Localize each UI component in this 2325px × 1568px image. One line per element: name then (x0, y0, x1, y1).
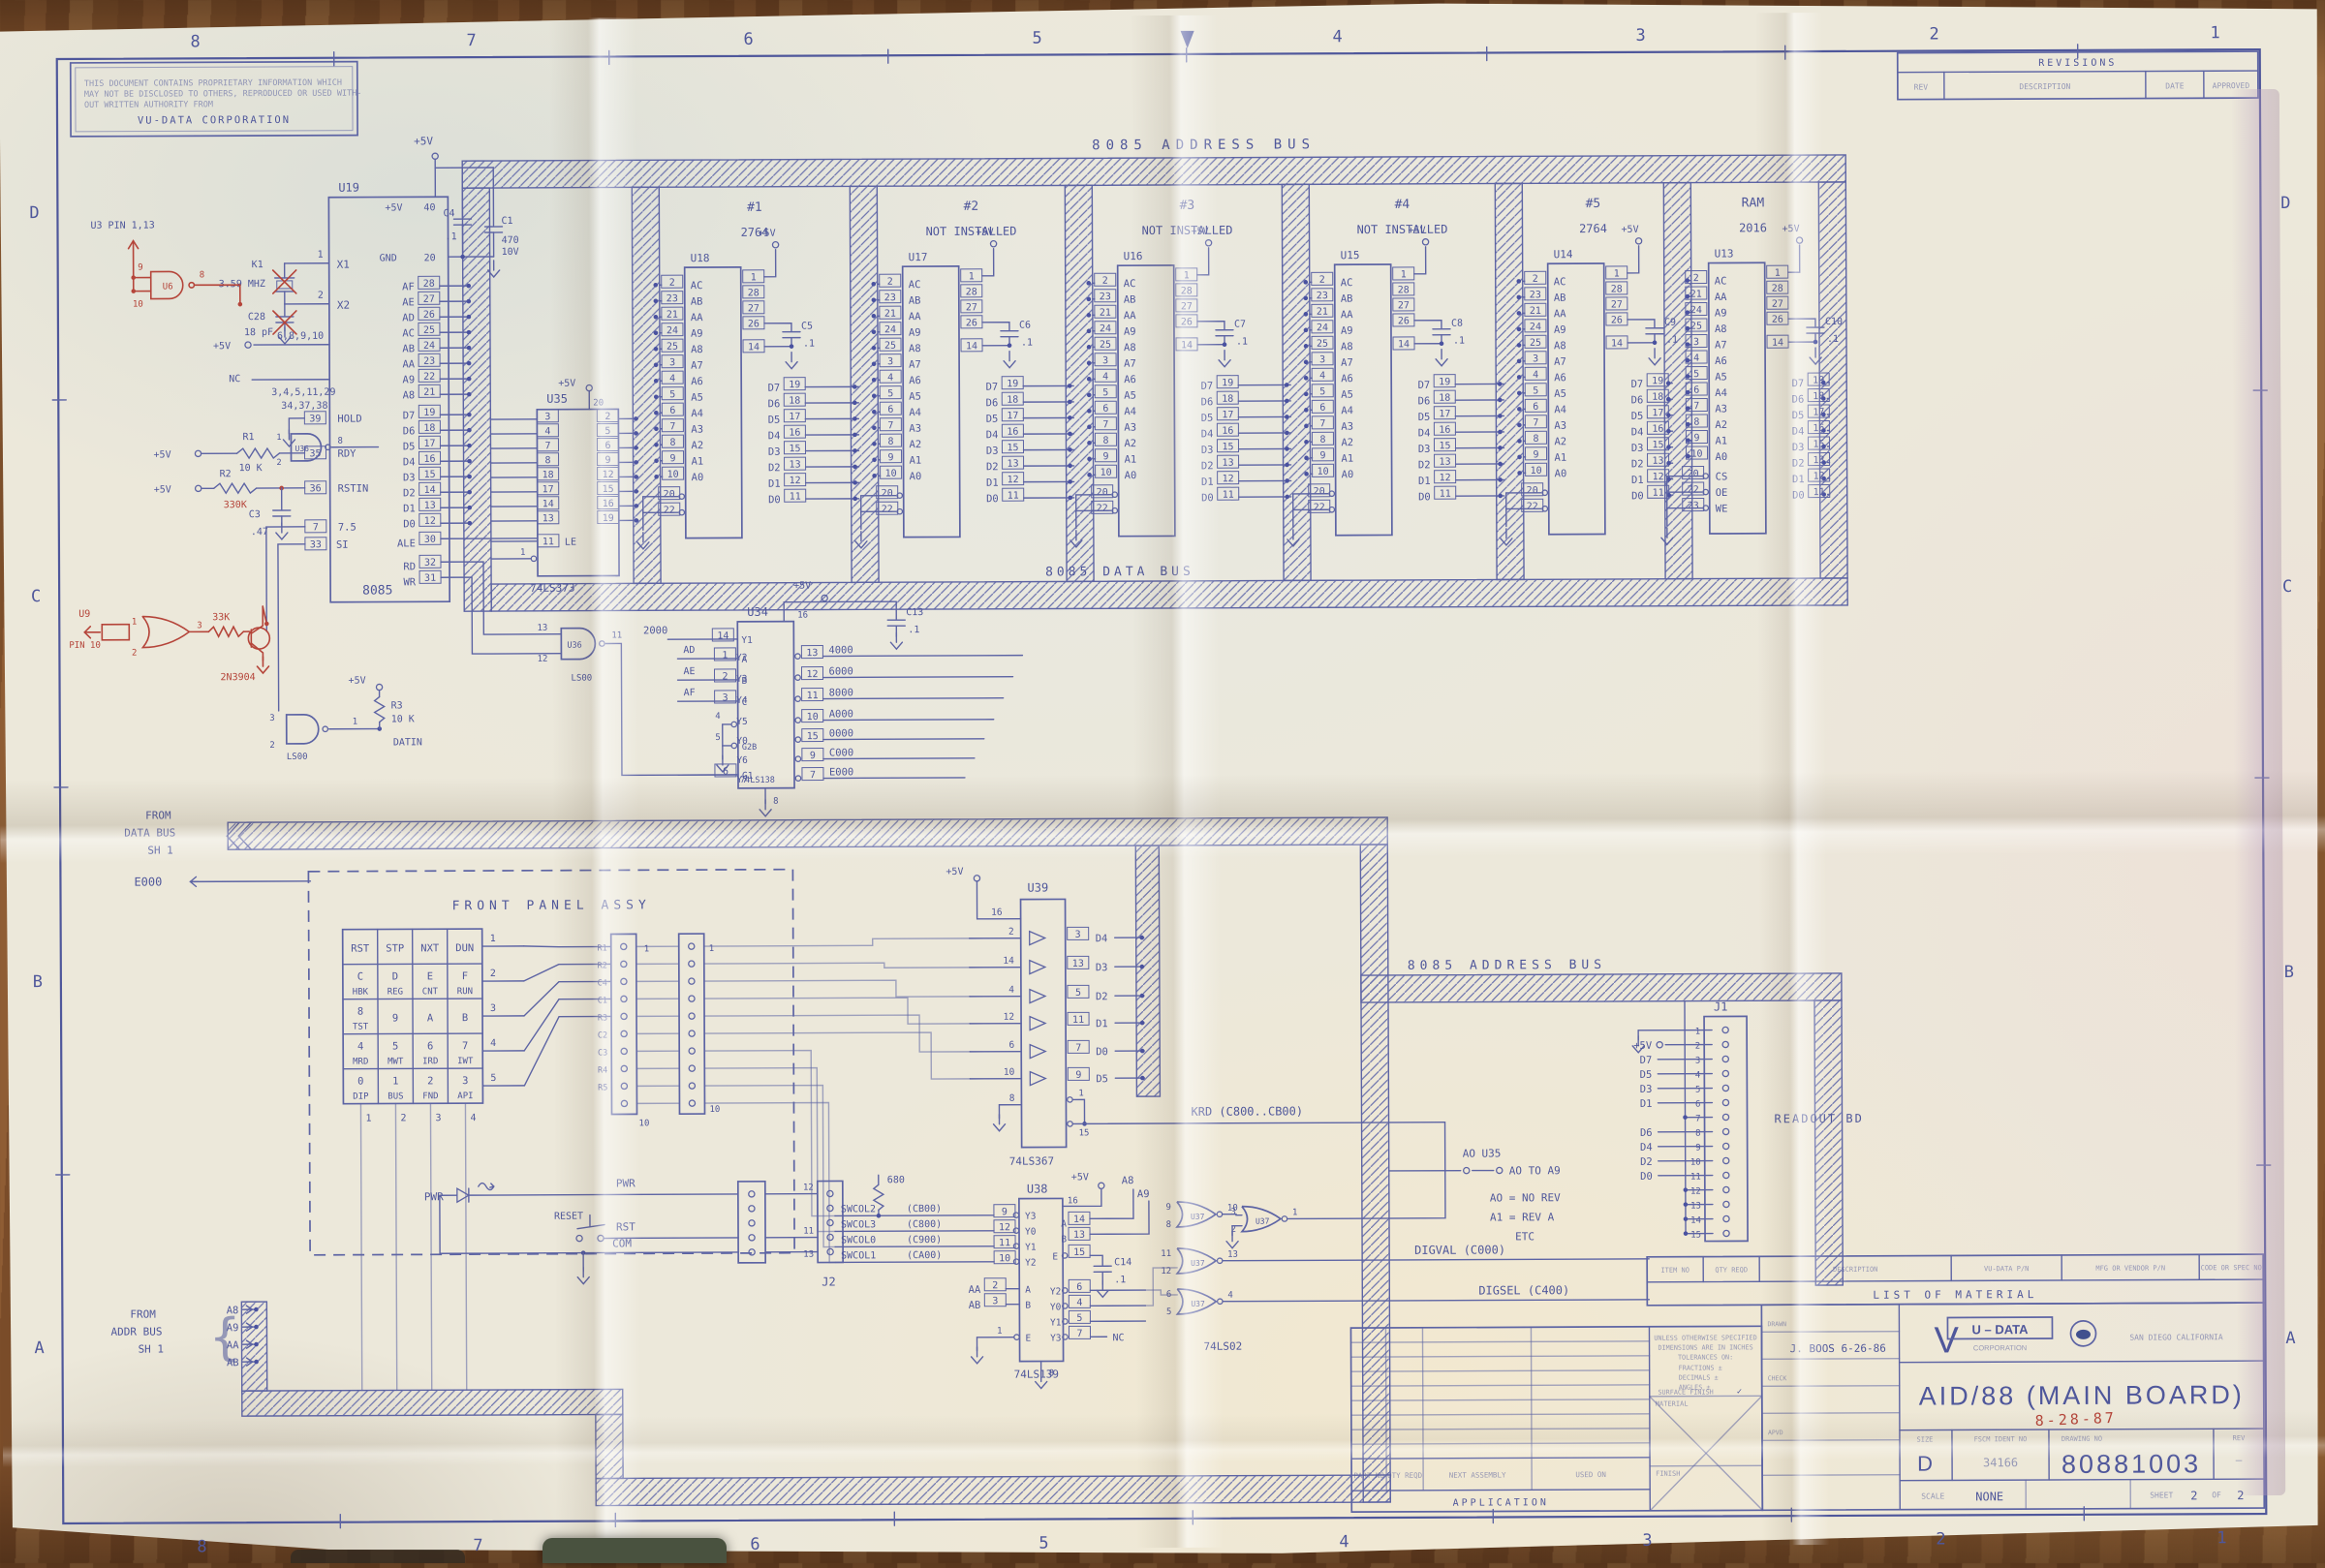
red-box (102, 625, 129, 640)
terminal (1796, 237, 1802, 243)
pin-number: 14 (748, 342, 759, 353)
label: 1 (365, 1114, 371, 1124)
conn-pin-label: C4 (598, 979, 607, 989)
label: AA (969, 1284, 981, 1296)
junction (1517, 455, 1522, 460)
terminal (621, 1083, 627, 1089)
zone-number: 7 (466, 31, 476, 50)
pin-number: 15 (807, 731, 819, 742)
label: 10 K (391, 714, 415, 724)
pin-number: 3 (1102, 355, 1108, 366)
label: PIN 10 (69, 641, 101, 651)
size-label: SIZE (1917, 1436, 1934, 1444)
inversion-bubble (1013, 1213, 1018, 1217)
terminal (1497, 1167, 1503, 1173)
inversion-bubble (1013, 1259, 1018, 1264)
terminal (1722, 1085, 1728, 1091)
pin-number: 6 (1008, 1040, 1014, 1051)
address-value: 6000 (828, 665, 852, 677)
junction (852, 384, 857, 389)
pin-name: D6 (1418, 395, 1431, 407)
memory-chip-U14: #52764U142AC23AB21AA24A925A83A74A65A56A4… (1499, 197, 1679, 545)
pin-number: 8 (669, 438, 675, 448)
pin-name: D4 (1631, 426, 1644, 438)
inversion-bubble (1218, 1299, 1223, 1304)
dwg-no-label: DRAWING NO (2061, 1435, 2102, 1443)
junction (467, 506, 472, 510)
junction (254, 1325, 259, 1330)
terminal (1722, 1027, 1728, 1032)
junction (634, 446, 638, 450)
pin-number: 3 (1693, 337, 1699, 348)
label: AB (227, 1357, 239, 1368)
pin-number: 21 (1530, 306, 1541, 317)
bus-bar (1814, 1000, 1843, 1285)
wire (278, 544, 306, 711)
terminal (432, 153, 438, 159)
key-label: RST (351, 943, 370, 955)
junction (1304, 456, 1309, 461)
label: +5V (153, 449, 170, 460)
label: +5V (154, 484, 171, 495)
wire (1627, 246, 1639, 273)
pin-name: D5 (1418, 412, 1431, 423)
pin-name: Y6 (736, 755, 748, 766)
pin-number: 23 (1530, 290, 1541, 300)
inversion-bubble (1013, 1244, 1018, 1248)
label: A8 (403, 389, 416, 401)
terminal (621, 1030, 627, 1036)
conn-pin-label: R2 (598, 962, 607, 971)
gate-part: LS00 (572, 674, 593, 684)
label: 15 (1079, 1128, 1090, 1138)
pin-number: 4 (669, 374, 675, 384)
junction (872, 297, 877, 302)
pin-number: 31 (424, 573, 436, 584)
terminal (689, 1030, 695, 1036)
a8-label: A8 (1122, 1175, 1134, 1186)
pin-name: D0 (986, 493, 999, 505)
vudata-logo-text: U – DATA (1971, 1322, 2029, 1337)
wire (704, 998, 970, 1025)
label: AB (402, 343, 415, 354)
wire (835, 1215, 994, 1216)
terminal (689, 978, 695, 984)
pin-number: 12 (1007, 475, 1019, 485)
terminal (1723, 1157, 1729, 1163)
zone-number: 2 (1929, 24, 1938, 44)
pin-number: 1 (969, 271, 975, 282)
pin-number: 12 (790, 476, 801, 486)
label: .1 (1114, 1275, 1126, 1285)
bus-bar (1065, 185, 1094, 581)
pin-number: 3 (669, 357, 675, 368)
label: 13 (803, 1250, 814, 1260)
label: 18 pF (244, 327, 273, 338)
label: D0 (403, 518, 416, 530)
zone-number: 8 (190, 32, 200, 51)
sheet-of: OF (2212, 1491, 2221, 1499)
terminal (621, 996, 627, 1001)
label: R1 (242, 432, 254, 443)
label: U37 (1191, 1300, 1205, 1308)
pin-number: 13 (790, 460, 801, 471)
pin-number: 10 (885, 469, 897, 479)
key-label: IWT (457, 1057, 474, 1066)
label: ALE (397, 538, 416, 549)
rev-jumper-note: AO U35AO TO A9AO = NO REVA1 = REV AETC (1389, 1147, 1562, 1244)
pin-name: AA (691, 312, 703, 323)
pin-number: 7 (1076, 1329, 1082, 1339)
pin-number: 26 (1611, 315, 1623, 325)
pin-name: A9 (909, 327, 921, 339)
pin-name: A9 (1341, 325, 1353, 337)
junction (1653, 340, 1658, 345)
junction (1285, 383, 1289, 387)
swcol-name: SWCOL0 (841, 1235, 876, 1245)
application-block: PART NO QTY REQD NEXT ASSEMBLY USED ON A… (1350, 1326, 1762, 1512)
finish-label: FINISH (1656, 1470, 1680, 1478)
junction (1285, 415, 1289, 419)
pin-number: 17 (542, 484, 554, 495)
label: 20 (424, 253, 436, 263)
key-label: CNT (422, 987, 439, 997)
swcol-addr: (CB00) (907, 1204, 942, 1214)
label: SH 1 (139, 1343, 165, 1356)
junction (1140, 994, 1145, 999)
pin-number: 15 (424, 470, 436, 480)
pin-name: A2 (1554, 436, 1566, 447)
label: .1 (446, 231, 457, 242)
pin-number: 23 (423, 356, 435, 367)
junction (1087, 345, 1092, 350)
pin-number: 10 (1690, 449, 1702, 460)
pin-number: 5 (1695, 1086, 1700, 1095)
label: AB (969, 1300, 981, 1311)
pin-number: 6 (669, 406, 675, 416)
pin-number: 5 (887, 388, 893, 399)
label: 11 (611, 630, 622, 640)
wire (835, 1262, 994, 1263)
junction (872, 346, 877, 351)
pin-number: 23 (1317, 291, 1328, 301)
pin-name: A3 (1554, 420, 1566, 432)
pin-number: 3 (887, 356, 893, 367)
pin-number: 8 (545, 455, 551, 466)
junction (1684, 1187, 1689, 1192)
junction (1087, 425, 1092, 430)
cap-value: .1 (803, 339, 815, 350)
wire (764, 250, 776, 277)
terminal (749, 1235, 755, 1241)
pin-name: D2 (1096, 991, 1108, 1002)
terminal (1422, 239, 1428, 245)
pin-number: 23 (1100, 292, 1111, 302)
pin-number: 13 (1073, 1230, 1085, 1241)
pin-name: A4 (1341, 405, 1353, 416)
junction (1087, 473, 1092, 477)
pin-number: 2 (1008, 927, 1014, 938)
wire (448, 929, 449, 1103)
label: AA (227, 1339, 239, 1351)
junction (467, 330, 472, 335)
pin-number: 5 (604, 426, 610, 437)
junction (1303, 280, 1308, 285)
label: 16 (991, 907, 1003, 918)
pin-number: 15 (1007, 443, 1018, 453)
junction (1007, 343, 1012, 348)
pin-number: 10 (667, 470, 679, 480)
pin-name: A8 (1341, 341, 1353, 353)
pin-name: A1 (1125, 454, 1137, 466)
pin-number: 21 (666, 310, 678, 321)
pin-number: 24 (1317, 323, 1328, 333)
pin-name: D0 (1631, 490, 1644, 502)
pin-number: 10 (1004, 1067, 1015, 1078)
pin-number: 1 (751, 272, 757, 283)
pin-name: D0 (1096, 1046, 1108, 1058)
terminal (1722, 1114, 1728, 1120)
pin-number: 15 (789, 444, 800, 454)
key-label: DUN (455, 942, 474, 954)
scale-value: NONE (1975, 1490, 2003, 1503)
terminal (1635, 238, 1641, 244)
junction (1686, 310, 1690, 315)
terminal (621, 978, 627, 984)
cap-value: .1 (1236, 337, 1248, 348)
bus-bar (1282, 184, 1311, 580)
junction (654, 330, 659, 335)
key-label: STP (386, 942, 404, 954)
junction (1087, 377, 1092, 382)
pin-number: 19 (789, 380, 800, 390)
junction (852, 465, 857, 470)
label: 8 (773, 797, 778, 807)
buffer-symbol (1030, 1072, 1045, 1086)
junction (466, 284, 471, 289)
terminal (1722, 1128, 1728, 1134)
pin-name: A1 (1342, 453, 1354, 465)
pin-number: 7 (887, 420, 893, 431)
label: 40 (423, 202, 435, 213)
pin-name: A9 (691, 328, 703, 340)
junction (254, 1360, 259, 1365)
label: C28 (248, 312, 265, 323)
junction (1517, 327, 1522, 332)
wire (1197, 322, 1224, 329)
junction (1517, 407, 1522, 412)
pin-number: 16 (1652, 424, 1663, 435)
zone-letter: B (33, 972, 43, 992)
pin-name: Y3 (736, 674, 748, 685)
pin-number: 24 (423, 341, 435, 352)
inversion-bubble (795, 654, 800, 659)
pin-number: 28 (1181, 286, 1193, 296)
pin-number: 16 (789, 428, 800, 439)
revisions-block: REVISIONS REV DESCRIPTION DATE APPROVED (1898, 51, 2258, 100)
pin-number: 18 (789, 396, 800, 407)
wire (605, 643, 738, 776)
terminal (1205, 240, 1211, 246)
lower-buses: FROMDATA BUSSH 1E0008085 ADDRESS BUS (124, 802, 1844, 1508)
pin-number: 7 (1533, 417, 1538, 428)
conn-pin-label: R5 (598, 1084, 607, 1093)
pin-number: 24 (1530, 322, 1541, 332)
pin-name: AB (1341, 293, 1353, 305)
pin-name: D3 (1792, 442, 1805, 453)
pin-number: 14 (1772, 338, 1783, 349)
chip-part: 2764 (1579, 222, 1607, 235)
bus-bar (632, 187, 661, 583)
pin-number: 21 (1100, 308, 1111, 319)
label: U37 (1191, 1213, 1205, 1221)
junction (467, 444, 472, 448)
fscm-value: 34166 (1983, 1456, 2018, 1469)
label: ETC (1515, 1230, 1534, 1243)
pin-number: 4 (1695, 1071, 1700, 1081)
junction (1068, 432, 1072, 437)
chip-ref: U38 (1027, 1183, 1048, 1196)
label: FROM (130, 1308, 156, 1321)
label: Y3 (1050, 1333, 1062, 1343)
pin-name: A3 (1341, 421, 1353, 433)
junction (1821, 428, 1826, 433)
label: 9 (138, 263, 142, 273)
pin-number: 6 (1695, 1100, 1700, 1110)
pin-number: 5 (1533, 385, 1538, 396)
label: A (1061, 1218, 1067, 1229)
label: 10V (502, 247, 519, 258)
key-label: D (392, 970, 398, 982)
pin-name: A0 (1342, 469, 1354, 480)
label: C3 (249, 509, 261, 520)
label: R3 (391, 700, 403, 711)
pin-number: 22 (1688, 485, 1699, 496)
pin-number: 12 (424, 516, 436, 527)
label: 3 (490, 1003, 496, 1014)
pin-name: Y2 (1025, 1258, 1037, 1269)
revisions-col-rev: REV (1914, 83, 1929, 92)
label: AF (684, 688, 696, 698)
pin-number: 20 (882, 488, 893, 499)
label: 10 (133, 300, 143, 310)
label: D3 (403, 472, 416, 483)
front-panel: FRONT PANEL ASSYRSTSTPNXTDUNCHBKDREGECNT… (308, 869, 843, 1390)
terminal (689, 996, 695, 1001)
plus5-label: +5V (759, 229, 776, 239)
junction (634, 475, 638, 479)
terminal (1464, 1168, 1470, 1174)
pin-number: 13 (1690, 1202, 1701, 1212)
wire (577, 1277, 589, 1284)
pin-number: 14 (717, 630, 728, 641)
bus-bar (1135, 845, 1160, 1096)
wire (823, 720, 994, 721)
cap-value: .1 (1666, 335, 1678, 346)
pin-number: 13 (806, 648, 818, 659)
junction (654, 426, 659, 431)
junction (1068, 415, 1072, 420)
pin-number: 19 (1222, 378, 1233, 388)
pin-name: A6 (1554, 372, 1566, 384)
bus-label-address-top: 8085 ADDRESS BUS (1092, 137, 1316, 153)
junction (1684, 1231, 1689, 1236)
pin-number: 25 (1530, 338, 1541, 349)
label: 16 (797, 611, 808, 621)
pin-number: 3 (1319, 354, 1325, 365)
pin-number: 22 (1097, 504, 1108, 514)
pin-number: 26 (966, 318, 977, 328)
junction (1685, 278, 1689, 283)
pin-name: D1 (1418, 476, 1431, 487)
pin-name: D2 (1631, 458, 1644, 470)
buffer-symbol (1030, 932, 1045, 945)
junction (467, 475, 472, 479)
chip-ref: U15 (1341, 249, 1360, 261)
pin-name: A1 (1555, 452, 1567, 464)
pin-number: 3 (1533, 354, 1538, 364)
label: 1 (132, 618, 137, 628)
pin-number: 9 (1002, 1207, 1007, 1217)
pin-name: D5 (1631, 411, 1644, 422)
key-label: API (457, 1091, 473, 1101)
gate-part: 74LS02 (1204, 1340, 1243, 1353)
wire (1197, 248, 1209, 275)
junction (872, 457, 877, 462)
pin-number: 5 (1319, 386, 1325, 397)
pin-name: A5 (1124, 390, 1136, 402)
pin-number: 15 (1439, 441, 1450, 451)
label: 8 (1049, 1368, 1054, 1378)
label: D4 (403, 456, 416, 468)
pin-name: A6 (1124, 374, 1136, 385)
desk-photo: { "colors":{"ink":"#5d64a4","red":"#b545… (0, 0, 2325, 1563)
pin-number: 10 (1690, 1158, 1701, 1168)
label: C14 (1114, 1257, 1131, 1268)
junction (1068, 384, 1072, 388)
pin-name: A0 (910, 471, 922, 482)
label: +5V (213, 341, 231, 352)
key-label: 3 (462, 1075, 468, 1087)
pin-number: 11 (1653, 488, 1664, 499)
wire (430, 1103, 431, 1390)
pin-number: 14 (1073, 1214, 1085, 1225)
chip-part: NOT INSTALLED (926, 225, 1017, 238)
junction (1686, 326, 1690, 331)
pin-name: AC (1341, 277, 1353, 289)
pin-name: A3 (691, 424, 703, 436)
conn-pin-label: R4 (598, 1066, 607, 1076)
pin-number: 26 (1398, 316, 1410, 326)
terminal (689, 1083, 695, 1089)
key-label: MWT (387, 1057, 404, 1066)
tolerance-note: DECIMALS ± (1679, 1374, 1719, 1382)
pin-name: D3 (768, 446, 781, 458)
label: DATIN (393, 737, 422, 748)
pin-number: 25 (1317, 339, 1328, 350)
junction (654, 458, 659, 463)
junction (653, 283, 658, 288)
pin-number: 11 (542, 537, 554, 547)
junction (1821, 381, 1826, 385)
junction (467, 459, 472, 464)
wire (1223, 1259, 1649, 1261)
chip-ref: U13 (1715, 247, 1734, 260)
pin-number: 16 (1439, 425, 1450, 436)
junction (1140, 1076, 1145, 1081)
digsel-label: DIGSEL (C400) (1478, 1283, 1569, 1297)
pin-name: D7 (1201, 381, 1214, 392)
